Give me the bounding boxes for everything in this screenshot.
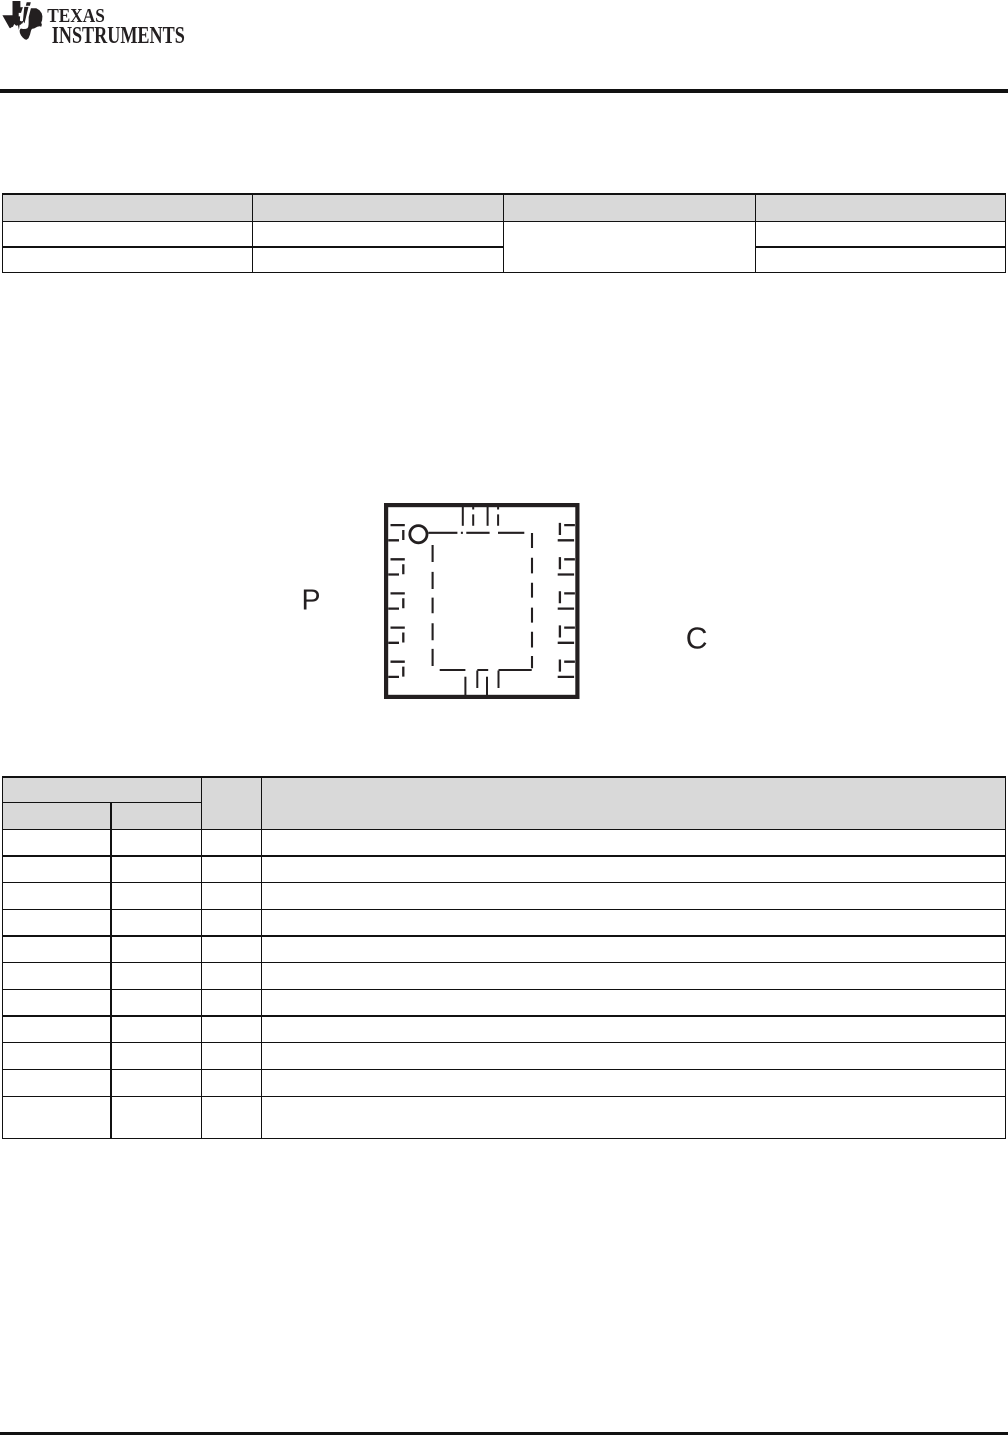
svg-text:INSTRUMENTS: INSTRUMENTS bbox=[52, 22, 185, 49]
svg-text:C: C bbox=[686, 622, 708, 655]
svg-text:P: P bbox=[302, 584, 321, 616]
